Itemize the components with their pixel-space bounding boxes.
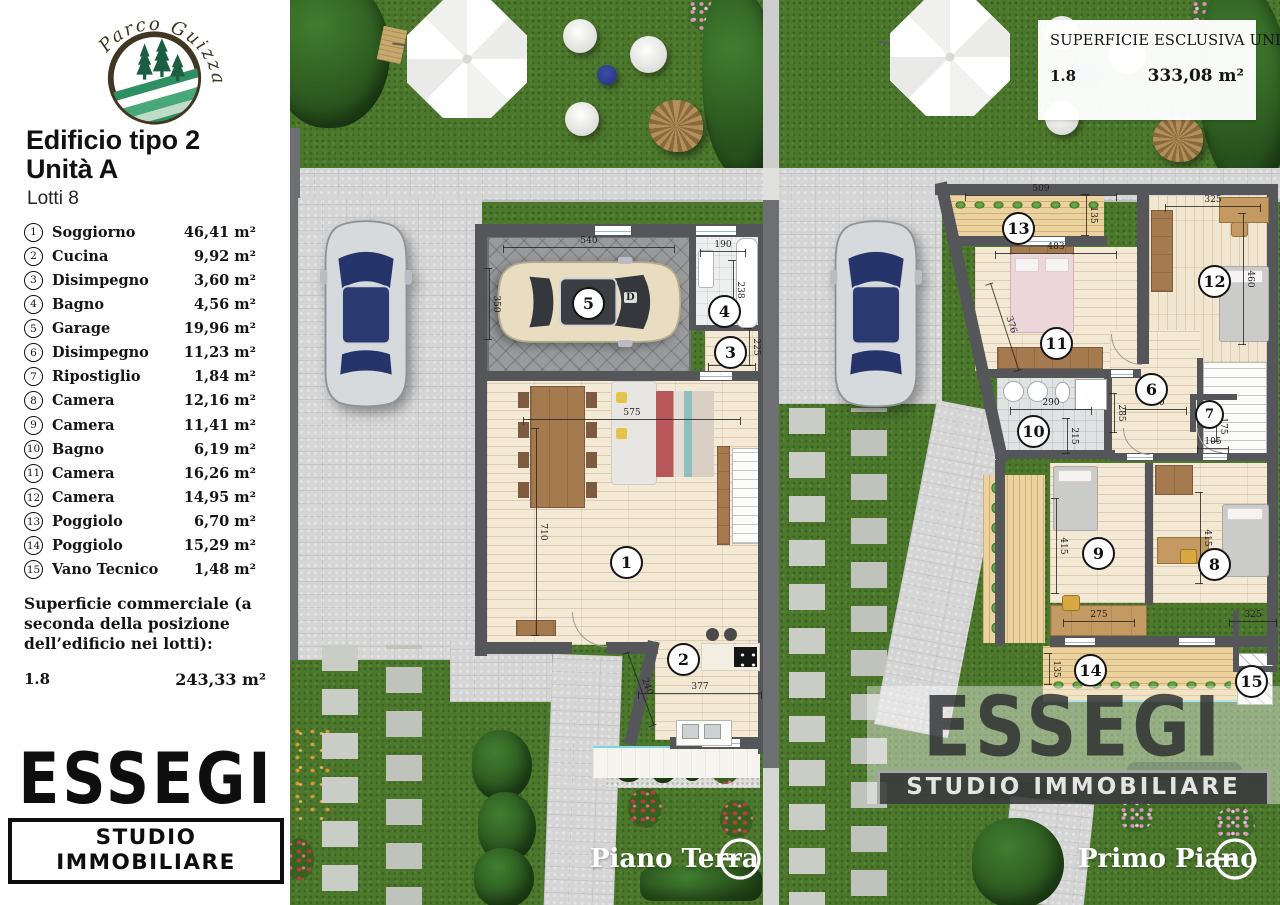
legend-name: Camera — [52, 417, 184, 434]
legend-area: 46,41 m² — [184, 224, 256, 241]
rug — [656, 391, 714, 477]
desk — [1219, 197, 1269, 223]
legend-row: 3Disimpegno3,60 m² — [24, 270, 256, 290]
wall — [1233, 610, 1239, 672]
essegi-tagline: STUDIO IMMOBILIARE — [8, 818, 284, 884]
wall — [475, 224, 487, 656]
dimension: 285 — [1114, 393, 1115, 433]
legend-area: 12,16 m² — [184, 392, 256, 409]
legend-num: 15 — [24, 560, 43, 579]
dimension: 225 — [749, 328, 750, 366]
room-marker-poggiolo-14: 14 — [1074, 654, 1107, 687]
wall — [1267, 184, 1278, 665]
window — [1065, 638, 1095, 645]
legend-area: 1,48 m² — [194, 561, 256, 578]
room-marker-camera-11: 11 — [1040, 327, 1073, 360]
legend-area: 9,92 m² — [194, 248, 256, 265]
room-marker-poggiolo-13: 13 — [1002, 212, 1035, 245]
dimension: 215 — [1067, 418, 1068, 454]
legend-name: Disimpegno — [52, 272, 194, 289]
info-sidebar: Parco Guizza Edificio tipo 2 Unità A Lot… — [0, 0, 290, 905]
wall — [475, 642, 572, 654]
sofa-pillow — [616, 392, 627, 403]
tree-canopy — [972, 818, 1064, 905]
room-marker-bagno-10: 10 — [1017, 415, 1050, 448]
garden-pouf — [563, 19, 597, 53]
legend-name: Camera — [52, 465, 184, 482]
room-legend: 1Soggiorno46,41 m² 2Cucina9,92 m² 3Disim… — [24, 222, 256, 580]
legend-row: 14Poggiolo15,29 m² — [24, 536, 256, 556]
room-marker-camera-8: 8 — [1198, 548, 1231, 581]
legend-num: 14 — [24, 536, 43, 555]
planter-row — [951, 196, 1101, 213]
garden-pouf — [565, 102, 599, 136]
sink — [704, 724, 721, 739]
dimension: 575 — [523, 419, 741, 420]
legend-row: 11Camera16,26 m² — [24, 463, 256, 483]
wicker-chair — [649, 100, 703, 152]
hedge-right — [702, 0, 767, 178]
sofa-pillow — [616, 428, 627, 439]
dimension: 135 — [1086, 194, 1087, 236]
legend-area: 3,60 m² — [194, 272, 256, 289]
legend-num: 12 — [24, 488, 43, 507]
door-opening — [700, 372, 732, 380]
cooktop — [734, 647, 757, 667]
legend-num: 6 — [24, 343, 43, 362]
dimension: 325 — [1229, 621, 1277, 622]
legend-row: 12Camera14,95 m² — [24, 488, 256, 508]
window — [696, 226, 736, 235]
room-marker-vano-15: 15 — [1235, 665, 1268, 698]
room-marker-bagno: 4 — [708, 295, 741, 328]
dimension: 290 — [1010, 409, 1092, 410]
parked-car — [320, 216, 412, 410]
legend-num: 7 — [24, 367, 43, 386]
wall — [995, 450, 1115, 459]
car-top-icon — [830, 216, 922, 410]
stepping-stones — [300, 645, 460, 905]
wardrobe — [1151, 210, 1173, 292]
dimension: 377 — [638, 693, 762, 694]
commercial-area-block: Superficie commerciale (a seconda della … — [24, 594, 266, 689]
chair — [1231, 222, 1248, 237]
window — [1179, 638, 1215, 645]
essegi-wordmark: ESSEGI — [8, 744, 284, 827]
essegi-logo: ESSEGI STUDIO IMMOBILIARE — [8, 744, 284, 884]
legend-row: 4Bagno4,56 m² — [24, 294, 256, 314]
car-top-icon — [320, 216, 412, 410]
legend-area: 19,96 m² — [184, 320, 256, 337]
tv-wall-unit — [717, 446, 730, 545]
room-marker-soggiorno: 1 — [610, 546, 643, 579]
legend-row: 7Ripostiglio1,84 m² — [24, 367, 256, 387]
legend-name: Disimpegno — [52, 344, 184, 361]
legend-row: 1Soggiorno46,41 m² — [24, 222, 256, 242]
page-title: Edificio tipo 2 Unità A — [26, 126, 200, 183]
sidewalk — [290, 168, 767, 202]
pillow — [1058, 470, 1092, 482]
dimension: 135 — [1049, 653, 1050, 685]
ground-floor-site-plan: D 1 2 3 4 5 540 350 190 238 225 160 575 … — [290, 0, 767, 905]
dining-chairs — [518, 392, 529, 504]
exclusive-value: 333,08 m² — [1148, 66, 1244, 86]
dimension: 190 — [700, 251, 746, 252]
legend-row: 6Disimpegno11,23 m² — [24, 343, 256, 363]
title-line-2: Unità A — [26, 155, 200, 184]
legend-area: 4,56 m² — [194, 296, 256, 313]
dimension: 275 — [1063, 621, 1135, 622]
flower-shrub — [720, 800, 753, 838]
legend-name: Garage — [52, 320, 184, 337]
compass-north-icon — [1213, 837, 1257, 881]
title-line-1: Edificio tipo 2 — [26, 126, 200, 155]
dimension: 483 — [995, 253, 1117, 254]
hedge-column — [472, 730, 532, 800]
desk-chair — [1180, 549, 1197, 564]
legend-area: 6,19 m² — [194, 441, 256, 458]
door-opening — [1111, 370, 1133, 377]
legend-row: 10Bagno6,19 m² — [24, 439, 256, 459]
room-marker-garage: 5 — [572, 287, 605, 320]
exclusive-lot: 1.8 — [1050, 67, 1076, 85]
legend-num: 1 — [24, 223, 43, 242]
legend-name: Vano Tecnico — [52, 561, 194, 578]
pillow — [1045, 258, 1069, 272]
dining-chairs — [586, 392, 597, 504]
lot-divider-wall — [763, 0, 779, 905]
legend-name: Bagno — [52, 296, 194, 313]
dimension: 415 — [1056, 498, 1057, 594]
dimension: 710 — [536, 428, 537, 636]
legend-area: 14,95 m² — [184, 489, 256, 506]
room-marker-cucina: 2 — [667, 643, 700, 676]
compass-north-icon — [718, 837, 762, 881]
window — [595, 226, 631, 235]
wicker-chair — [1153, 116, 1203, 162]
legend-row: 13Poggiolo6,70 m² — [24, 512, 256, 532]
room-marker-disimpegno: 3 — [714, 336, 747, 369]
wall — [935, 184, 1275, 195]
legend-name: Camera — [52, 489, 184, 506]
legend-name: Bagno — [52, 441, 194, 458]
legend-num: 13 — [24, 512, 43, 531]
patio-umbrella — [890, 0, 1010, 116]
parked-car — [830, 216, 922, 410]
legend-name: Poggiolo — [52, 513, 194, 530]
legend-area: 15,29 m² — [184, 537, 256, 554]
room-marker-ripostiglio-7: 7 — [1195, 400, 1224, 429]
dimension: 105 — [1197, 448, 1229, 449]
commercial-value: 243,33 m² — [175, 670, 266, 689]
legend-name: Camera — [52, 392, 184, 409]
legend-name: Ripostiglio — [52, 368, 194, 385]
door-opening — [1203, 454, 1227, 460]
exclusive-surface-box: SUPERFICIE ESCLUSIVA UNITÀ A 1.8 333,08 … — [1038, 20, 1256, 120]
legend-row: 9Camera11,41 m² — [24, 415, 256, 435]
wall — [995, 460, 1005, 646]
flower-shrub — [628, 788, 662, 828]
legend-num: 8 — [24, 391, 43, 410]
legend-num: 11 — [24, 464, 43, 483]
lotti-subtitle: Lotti 8 — [27, 188, 79, 210]
legend-area: 1,84 m² — [194, 368, 256, 385]
legend-row: 2Cucina9,92 m² — [24, 246, 256, 266]
bathroom-sink — [1003, 381, 1024, 402]
brochure-page: Parco Guizza Edificio tipo 2 Unità A Lot… — [0, 0, 1280, 905]
hedge-column — [474, 848, 534, 905]
legend-num: 10 — [24, 440, 43, 459]
legend-num: 9 — [24, 416, 43, 435]
dimension: 350 — [489, 268, 490, 340]
wall — [689, 236, 696, 330]
dimension: 509 — [965, 195, 1117, 196]
staircase — [732, 448, 760, 544]
sink — [682, 724, 699, 739]
dining-table — [530, 386, 585, 508]
room-marker-disimpegno-6: 6 — [1135, 373, 1168, 406]
legend-num: 4 — [24, 295, 43, 314]
legend-area: 11,41 m² — [184, 417, 256, 434]
first-floor-site-plan: 13 11 12 10 6 7 9 8 14 15 509 135 483 37… — [767, 0, 1280, 905]
legend-row: 5Garage19,96 m² — [24, 319, 256, 339]
commercial-lot: 1.8 — [24, 670, 50, 689]
car-badge: D — [624, 292, 637, 303]
legend-num: 3 — [24, 271, 43, 290]
legend-name: Poggiolo — [52, 537, 184, 554]
essegi-watermark: ESSEGI STUDIO IMMOBILIARE — [867, 686, 1280, 804]
room-marker-camera-12: 12 — [1198, 265, 1231, 298]
wall — [1145, 463, 1153, 605]
commercial-label: Superficie commerciale (a seconda della … — [24, 594, 266, 654]
exclusive-title: SUPERFICIE ESCLUSIVA UNITÀ A — [1050, 32, 1244, 49]
garden-pouf — [630, 36, 667, 73]
dimension: 540 — [503, 247, 675, 248]
terrace — [593, 748, 760, 778]
legend-row: 8Camera12,16 m² — [24, 391, 256, 411]
legend-name: Cucina — [52, 248, 194, 265]
legend-area: 16,26 m² — [184, 465, 256, 482]
blue-pouf — [597, 65, 617, 85]
legend-area: 6,70 m² — [194, 513, 256, 530]
legend-area: 11,23 m² — [184, 344, 256, 361]
patio-umbrella — [407, 0, 527, 118]
tree-canopy — [290, 0, 390, 128]
legend-row: 15Vano Tecnico1,48 m² — [24, 560, 256, 580]
legend-num: 5 — [24, 319, 43, 338]
parco-guizza-logo: Parco Guizza — [72, 2, 237, 130]
dimension: 325 — [1165, 206, 1261, 207]
legend-name: Soggiorno — [52, 224, 184, 241]
shower — [1075, 379, 1107, 410]
desk-chair — [1062, 595, 1080, 611]
essegi-wordmark: ESSEGI — [867, 686, 1280, 780]
legend-num: 2 — [24, 247, 43, 266]
dimension: 210 — [1125, 409, 1187, 410]
room-marker-camera-9: 9 — [1082, 537, 1115, 570]
stool — [724, 628, 737, 641]
pillow — [1015, 258, 1039, 272]
dimension: 460 — [1243, 213, 1244, 345]
stool — [706, 628, 719, 641]
closet — [1155, 465, 1193, 495]
pillow — [1227, 508, 1263, 520]
